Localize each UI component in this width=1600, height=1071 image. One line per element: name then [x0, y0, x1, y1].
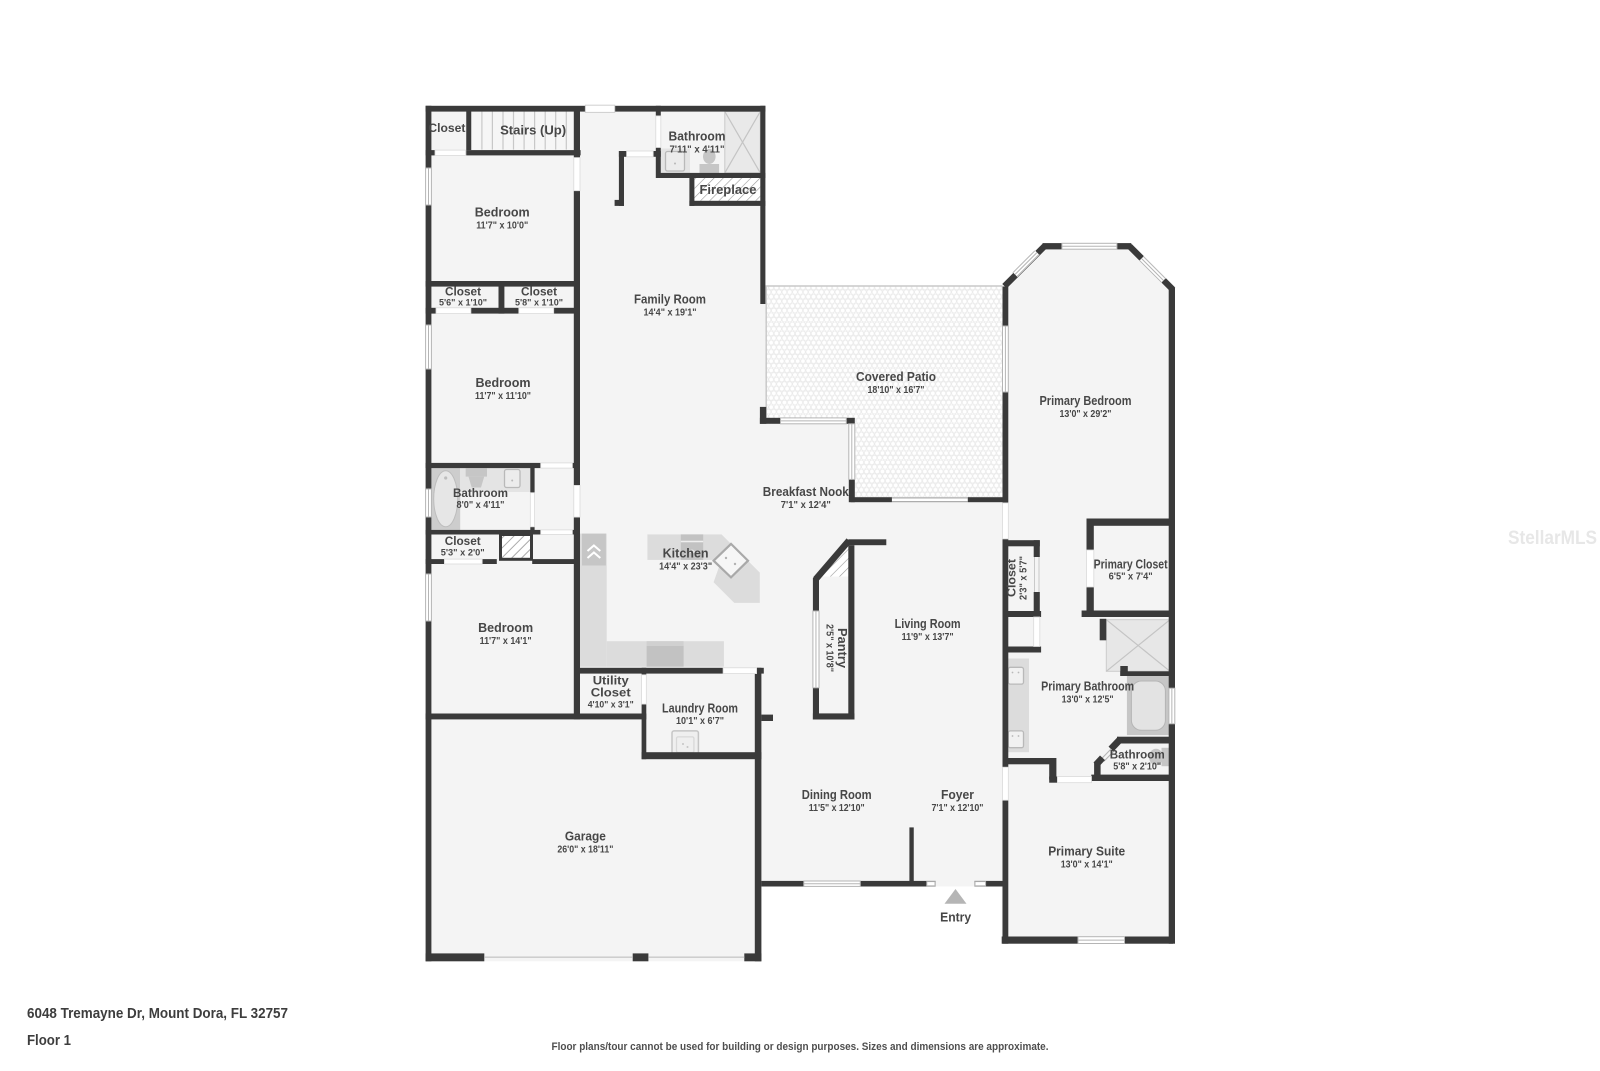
svg-text:4'10" x 3'1": 4'10" x 3'1" [588, 700, 634, 711]
svg-text:Foyer: Foyer [941, 787, 974, 802]
svg-text:5'6" x 1'10": 5'6" x 1'10" [439, 298, 487, 309]
svg-text:Bedroom: Bedroom [476, 375, 531, 390]
svg-text:Garage: Garage [565, 829, 606, 844]
svg-text:Stairs (Up): Stairs (Up) [500, 124, 566, 138]
svg-text:Pantry: Pantry [835, 628, 849, 668]
svg-text:7'1" x 12'4": 7'1" x 12'4" [781, 499, 831, 511]
svg-text:10'1" x 6'7": 10'1" x 6'7" [676, 715, 724, 727]
svg-text:Bathroom: Bathroom [453, 486, 508, 500]
svg-text:11'7" x 10'0": 11'7" x 10'0" [476, 220, 528, 232]
svg-text:Primary Bedroom: Primary Bedroom [1040, 393, 1132, 408]
svg-text:Bedroom: Bedroom [475, 205, 530, 220]
svg-text:Primary Bathroom: Primary Bathroom [1041, 679, 1134, 694]
svg-text:Closet: Closet [591, 686, 631, 700]
svg-text:Floor 1: Floor 1 [27, 1033, 71, 1049]
svg-text:14'4" x 19'1": 14'4" x 19'1" [644, 307, 697, 319]
svg-text:6048 Tremayne Dr, Mount Dora,: 6048 Tremayne Dr, Mount Dora, FL 32757 [27, 1006, 288, 1022]
svg-text:6'5" x 7'4": 6'5" x 7'4" [1109, 571, 1153, 583]
svg-text:5'8" x 2'10": 5'8" x 2'10" [1113, 762, 1161, 773]
svg-text:Bathroom: Bathroom [1110, 748, 1165, 762]
svg-text:7'1" x 12'10": 7'1" x 12'10" [932, 802, 984, 814]
svg-text:Primary Closet: Primary Closet [1094, 558, 1169, 572]
svg-text:11'7" x 11'10": 11'7" x 11'10" [475, 390, 531, 402]
svg-text:5'8" x 1'10": 5'8" x 1'10" [515, 298, 563, 309]
svg-text:Kitchen: Kitchen [663, 546, 709, 561]
svg-text:StellarMLS: StellarMLS [1508, 527, 1597, 549]
svg-text:14'4" x 23'3": 14'4" x 23'3" [659, 561, 712, 573]
svg-text:Fireplace: Fireplace [700, 183, 757, 197]
svg-text:Bedroom: Bedroom [478, 620, 533, 635]
svg-text:Entry: Entry [940, 911, 971, 925]
svg-text:8'0" x 4'11": 8'0" x 4'11" [457, 500, 505, 511]
svg-text:7'11" x 4'11": 7'11" x 4'11" [670, 144, 725, 156]
svg-text:Dining Room: Dining Room [802, 787, 872, 802]
svg-text:Living Room: Living Room [895, 616, 961, 631]
svg-text:18'10" x 16'7": 18'10" x 16'7" [868, 384, 925, 396]
svg-text:Breakfast Nook: Breakfast Nook [763, 485, 849, 499]
svg-text:Family Room: Family Room [634, 292, 706, 307]
svg-text:Bathroom: Bathroom [669, 130, 726, 144]
svg-text:11'7" x 14'1": 11'7" x 14'1" [480, 635, 532, 647]
svg-text:2'3" x 5'7": 2'3" x 5'7" [1019, 556, 1030, 600]
svg-text:13'0" x 14'1": 13'0" x 14'1" [1061, 859, 1113, 871]
svg-text:11'9" x 13'7": 11'9" x 13'7" [902, 631, 954, 643]
svg-text:Primary Suite: Primary Suite [1048, 844, 1125, 859]
svg-text:Closet: Closet [1005, 559, 1019, 597]
svg-text:Floor plans/tour cannot be use: Floor plans/tour cannot be used for buil… [552, 1041, 1049, 1053]
svg-text:13'0" x 12'5": 13'0" x 12'5" [1062, 694, 1114, 706]
svg-text:11'5" x 12'10": 11'5" x 12'10" [809, 802, 865, 814]
svg-text:Laundry Room: Laundry Room [662, 702, 738, 716]
svg-text:Closet: Closet [428, 123, 465, 135]
svg-text:Covered Patio: Covered Patio [856, 369, 936, 384]
svg-text:13'0" x 29'2": 13'0" x 29'2" [1060, 408, 1112, 420]
svg-text:26'0" x 18'11": 26'0" x 18'11" [557, 844, 613, 856]
svg-text:2'5" x 10'8": 2'5" x 10'8" [824, 624, 836, 672]
svg-text:5'3" x 2'0": 5'3" x 2'0" [441, 548, 485, 559]
svg-text:Closet: Closet [445, 536, 481, 548]
